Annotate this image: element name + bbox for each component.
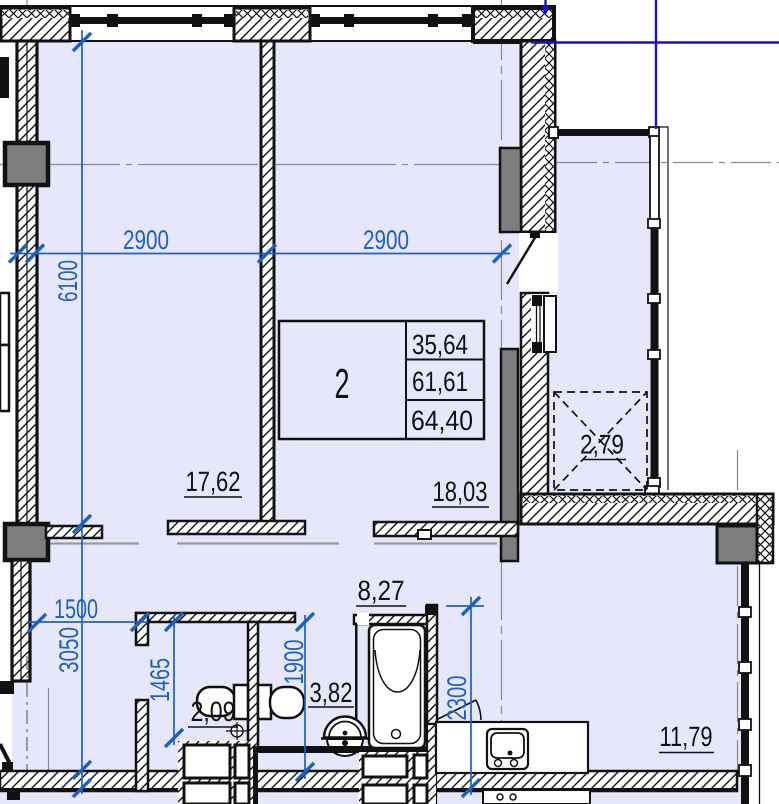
svg-text:2: 2: [335, 360, 350, 407]
svg-text:64,40: 64,40: [411, 405, 473, 436]
svg-text:1465: 1465: [145, 658, 175, 702]
svg-text:2,09: 2,09: [191, 696, 236, 727]
svg-text:1500: 1500: [54, 594, 98, 624]
svg-text:18,03: 18,03: [433, 476, 488, 507]
svg-text:61,61: 61,61: [412, 366, 468, 397]
svg-text:11,79: 11,79: [660, 721, 713, 752]
svg-text:1900: 1900: [279, 640, 309, 685]
svg-text:3050: 3050: [54, 627, 84, 673]
svg-text:6100: 6100: [53, 260, 83, 302]
svg-text:2,79: 2,79: [580, 430, 624, 460]
svg-text:2900: 2900: [123, 225, 169, 255]
svg-text:17,62: 17,62: [186, 466, 241, 497]
svg-text:2900: 2900: [363, 225, 409, 255]
svg-text:3,82: 3,82: [310, 677, 353, 708]
svg-text:35,64: 35,64: [412, 329, 468, 360]
svg-text:8,27: 8,27: [358, 575, 405, 606]
svg-text:2300: 2300: [442, 676, 472, 721]
